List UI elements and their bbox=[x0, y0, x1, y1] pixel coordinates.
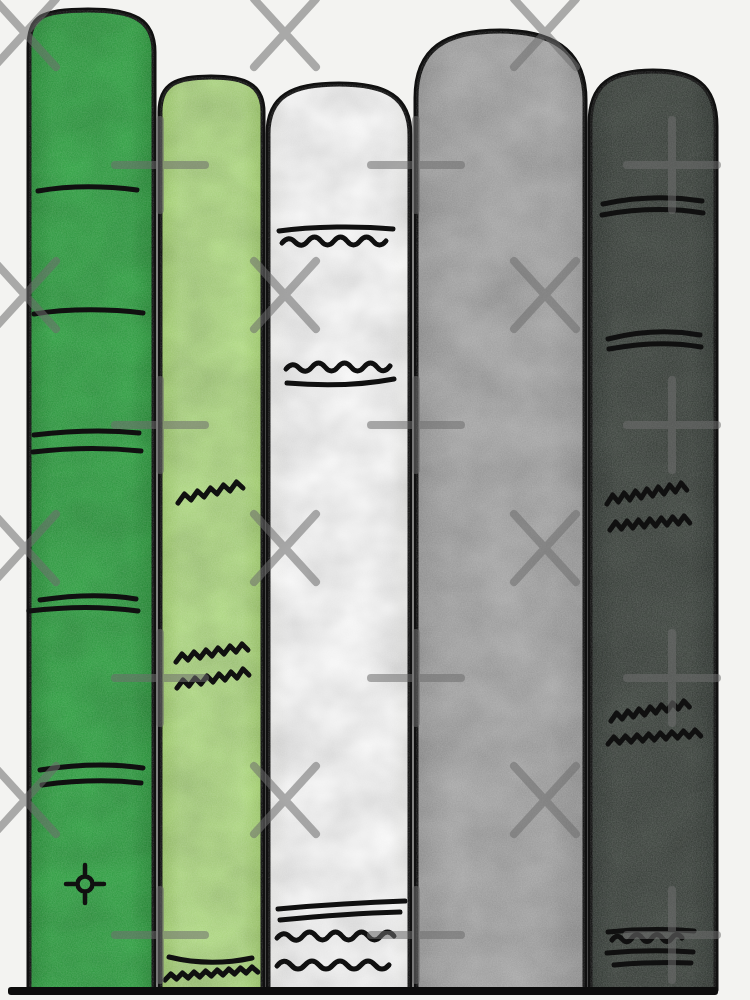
watercolor-texture bbox=[0, 0, 750, 1000]
bookshelf-illustration bbox=[0, 0, 750, 1000]
hand-drawn-line bbox=[614, 963, 691, 965]
shelf-line bbox=[8, 987, 718, 995]
hand-drawn-line bbox=[607, 951, 693, 953]
artwork-stage bbox=[0, 0, 750, 1000]
grain-texture bbox=[0, 0, 750, 1000]
